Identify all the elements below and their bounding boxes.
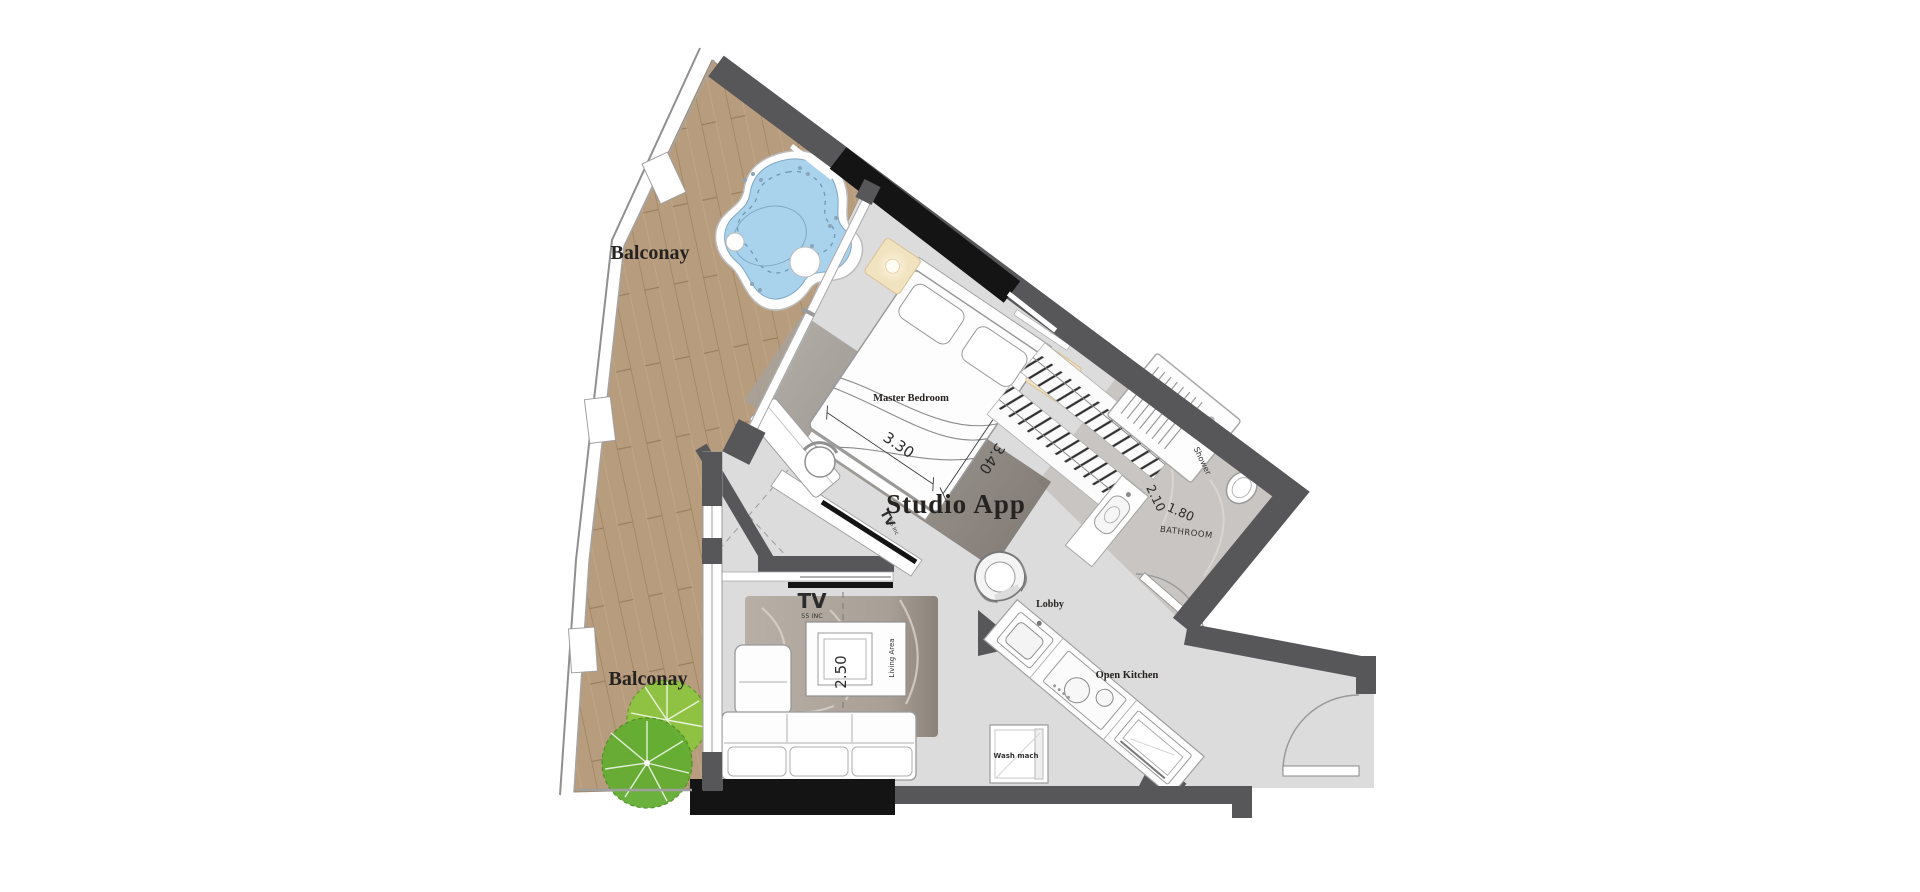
unit-label-studio-app: Studio App <box>886 489 1026 519</box>
living-tv-label: TV <box>797 589 827 613</box>
entrance-door-leaf <box>1283 766 1359 776</box>
room-label-open-kitchen: Open Kitchen <box>1096 670 1159 681</box>
washing-machine-label: Wash mach <box>994 752 1039 760</box>
facade-mullion <box>568 627 597 673</box>
room-label-master-bedroom: Master Bedroom <box>873 393 949 404</box>
floor-plan-drawing: 3.30 3.40 Master Bedroom Shower <box>0 0 1920 892</box>
living-tv-wall <box>758 556 894 572</box>
bottom-wall-cap <box>1232 786 1252 818</box>
floor-plan-page: 3.30 3.40 Master Bedroom Shower <box>0 0 1920 892</box>
sofa-chaise <box>735 645 791 715</box>
washing-machine: Wash mach <box>990 725 1048 783</box>
vanity-stool <box>805 447 835 477</box>
entry-wall-cap <box>1356 656 1376 694</box>
living-tv <box>788 582 893 588</box>
facade-mullion <box>584 397 615 444</box>
living-balcony-window-wall <box>702 452 722 790</box>
room-label-balcony-bottom: Balconay <box>609 668 688 690</box>
room-label-balcony-top: Balconay <box>611 242 690 264</box>
room-label-living-area: Living Area <box>888 638 896 677</box>
dim-living-width: 2.50 <box>832 655 850 688</box>
room-label-lobby: Lobby <box>1036 599 1064 610</box>
living-tv-size: 55 INC <box>801 612 823 620</box>
sofa-back-cushion <box>728 747 786 776</box>
sofa-back-cushion <box>790 747 848 776</box>
bottom-wall <box>895 786 1232 804</box>
sofa-back-cushion <box>852 747 912 776</box>
